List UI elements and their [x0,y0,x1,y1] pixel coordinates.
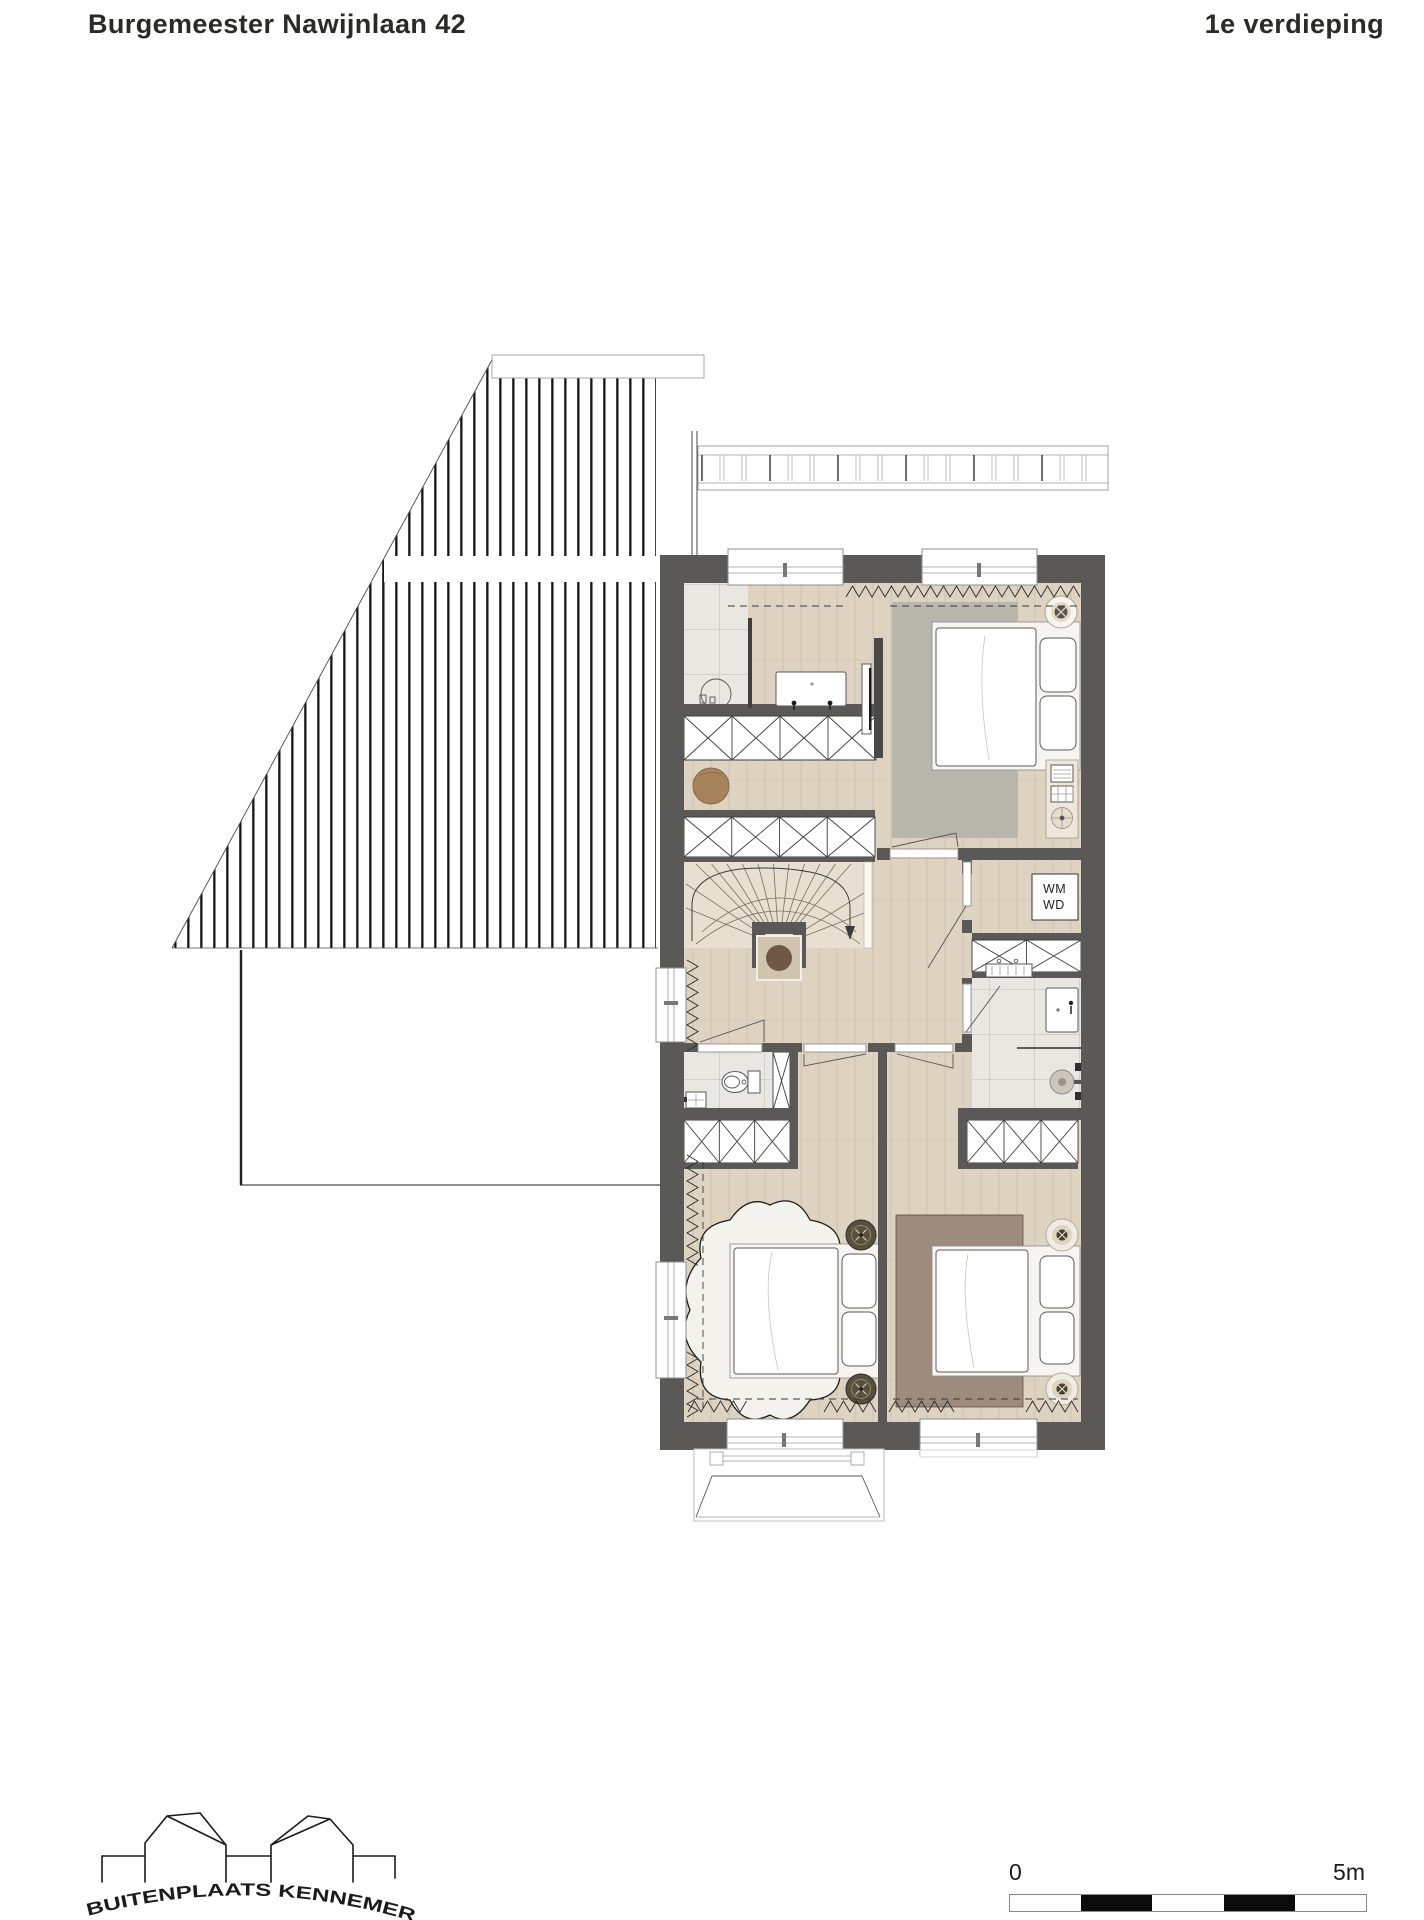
bed-duvet [936,1250,1028,1372]
wm-label: WM [1043,882,1066,896]
double-vanity [776,672,846,706]
bathroom-door [963,984,971,1032]
scale-segment [1010,1895,1081,1911]
ensuite-floor [684,583,748,708]
wc-cabinet [773,1052,790,1110]
roof-railing [692,431,1108,556]
scale-segment [1295,1895,1366,1911]
hall-stool [693,768,729,804]
ceiling-lamp-icon [1046,1373,1078,1405]
window [920,1419,1037,1455]
wd-label: WD [1043,898,1065,912]
pillow [1040,1256,1074,1308]
window-sill [920,1450,1037,1457]
scale-end-label: 5m [1333,1859,1365,1886]
roof-ridge-band [492,355,704,378]
window [728,549,843,585]
bedroom2-door [895,1044,953,1052]
radiator [986,964,1032,977]
pillow [842,1254,876,1308]
pillow [1040,1312,1074,1364]
pillow [1040,696,1076,750]
bed-duvet [734,1248,838,1374]
laundry-closet: WM WD [1032,874,1078,920]
pillow [842,1312,876,1366]
master-bedroom-door [890,849,958,858]
bathroom-sink [1046,988,1078,1032]
scale-segment [1224,1895,1295,1911]
logo: BUITENPLAATS KENNEMER [84,1813,418,1920]
ceiling-lamp-icon [846,1220,876,1250]
floor-plan-drawing: WM WD [0,0,1424,1920]
scale-segment [1081,1895,1152,1911]
bedroom2-wardrobe [967,1120,1078,1163]
window [922,549,1037,585]
bedroom3-door [804,1044,866,1052]
master-bed-duvet [936,628,1036,766]
toilet-bowl [722,1072,748,1093]
bedroom-divider-wall [878,1050,887,1426]
roof-hatch-gap [384,556,658,582]
logo-wordmark: BUITENPLAATS KENNEMER [84,1879,418,1920]
ceiling-lamp-icon [1046,1219,1078,1251]
scale-segment [1152,1895,1223,1911]
toilet-cistern [748,1071,760,1093]
dormer-outline [694,1449,1037,1521]
scale-bar [1009,1894,1367,1912]
ensuite-partition [748,618,752,708]
window [656,968,686,1042]
bedroom3-wardrobe [684,1120,790,1163]
window [656,1262,686,1378]
toilet-door [698,1044,762,1052]
roof-hatch-area [172,355,704,1185]
pillow [1040,638,1076,692]
plant-icon [766,945,792,971]
ceiling-lamp-icon [1045,596,1077,628]
bedroom3 [730,1220,880,1404]
floor-plan-page: Burgemeester Nawijnlaan 42 1e verdieping [0,0,1424,1920]
wm-wd-box [1032,874,1078,920]
scale-start-label: 0 [1009,1859,1022,1886]
ceiling-lamp-icon [846,1374,876,1404]
dressing-wardrobe [684,817,875,857]
logo-houses-icon [102,1813,395,1882]
laundry-door [963,862,971,906]
media-wall [874,638,883,758]
master-wardrobe [684,716,876,760]
